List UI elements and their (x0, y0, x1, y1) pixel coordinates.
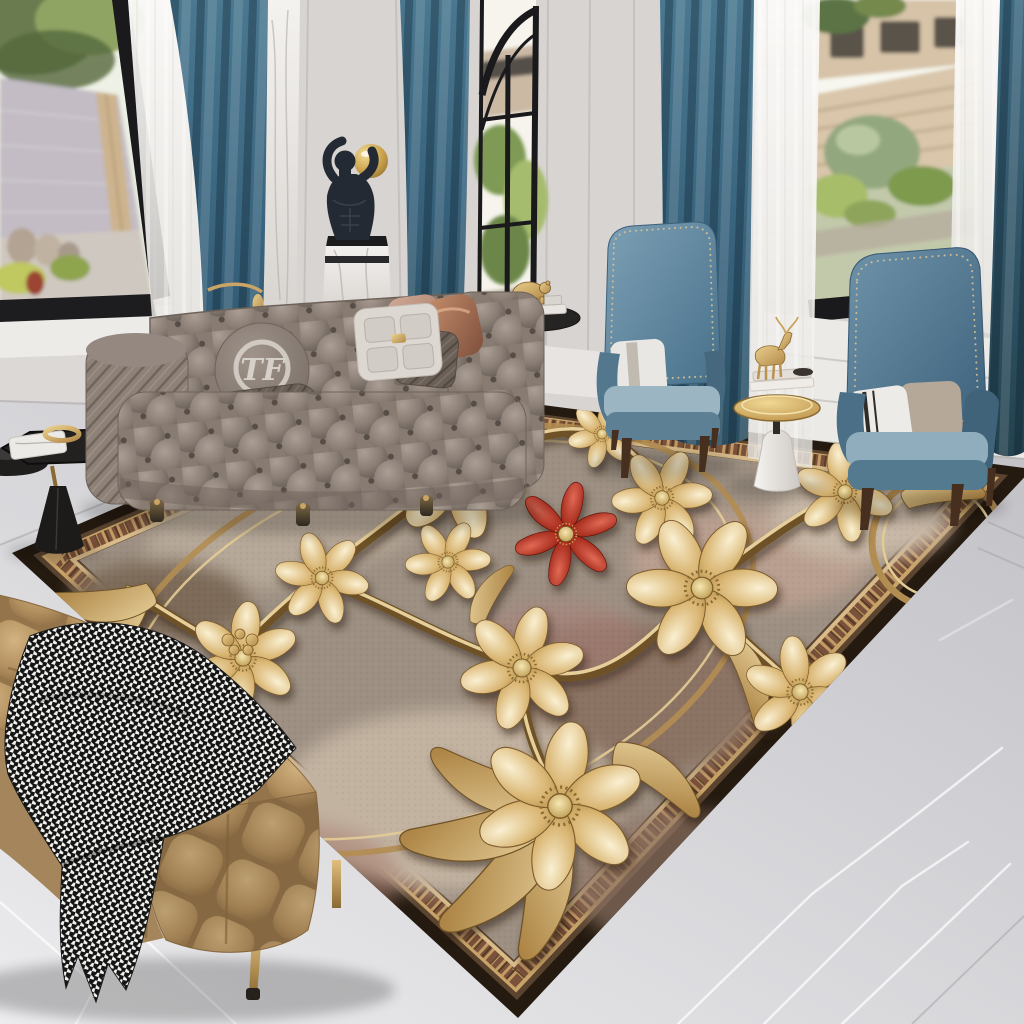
monogram-text: TF (240, 353, 286, 388)
pillow-gold-clasp (391, 333, 406, 343)
small-round-box (793, 368, 813, 376)
chair-a-rail (606, 412, 720, 440)
clasp-pillow (353, 302, 443, 381)
armchair-right (830, 248, 1006, 530)
left-arm-roll (86, 333, 186, 367)
chair-b-rail (848, 460, 988, 490)
bench-rear-leg (332, 860, 341, 908)
chair-b-shadow (830, 491, 1006, 521)
pedestal-band (325, 256, 389, 263)
chair-a-shadow (588, 452, 736, 480)
bench-leg-foot (246, 988, 260, 1000)
gold-table-top (734, 395, 820, 421)
living-room-photo: TF (0, 0, 1024, 1024)
marble-pilaster (262, 0, 300, 335)
sofa: TF (80, 291, 550, 534)
scene-canvas: TF (0, 0, 1024, 1024)
